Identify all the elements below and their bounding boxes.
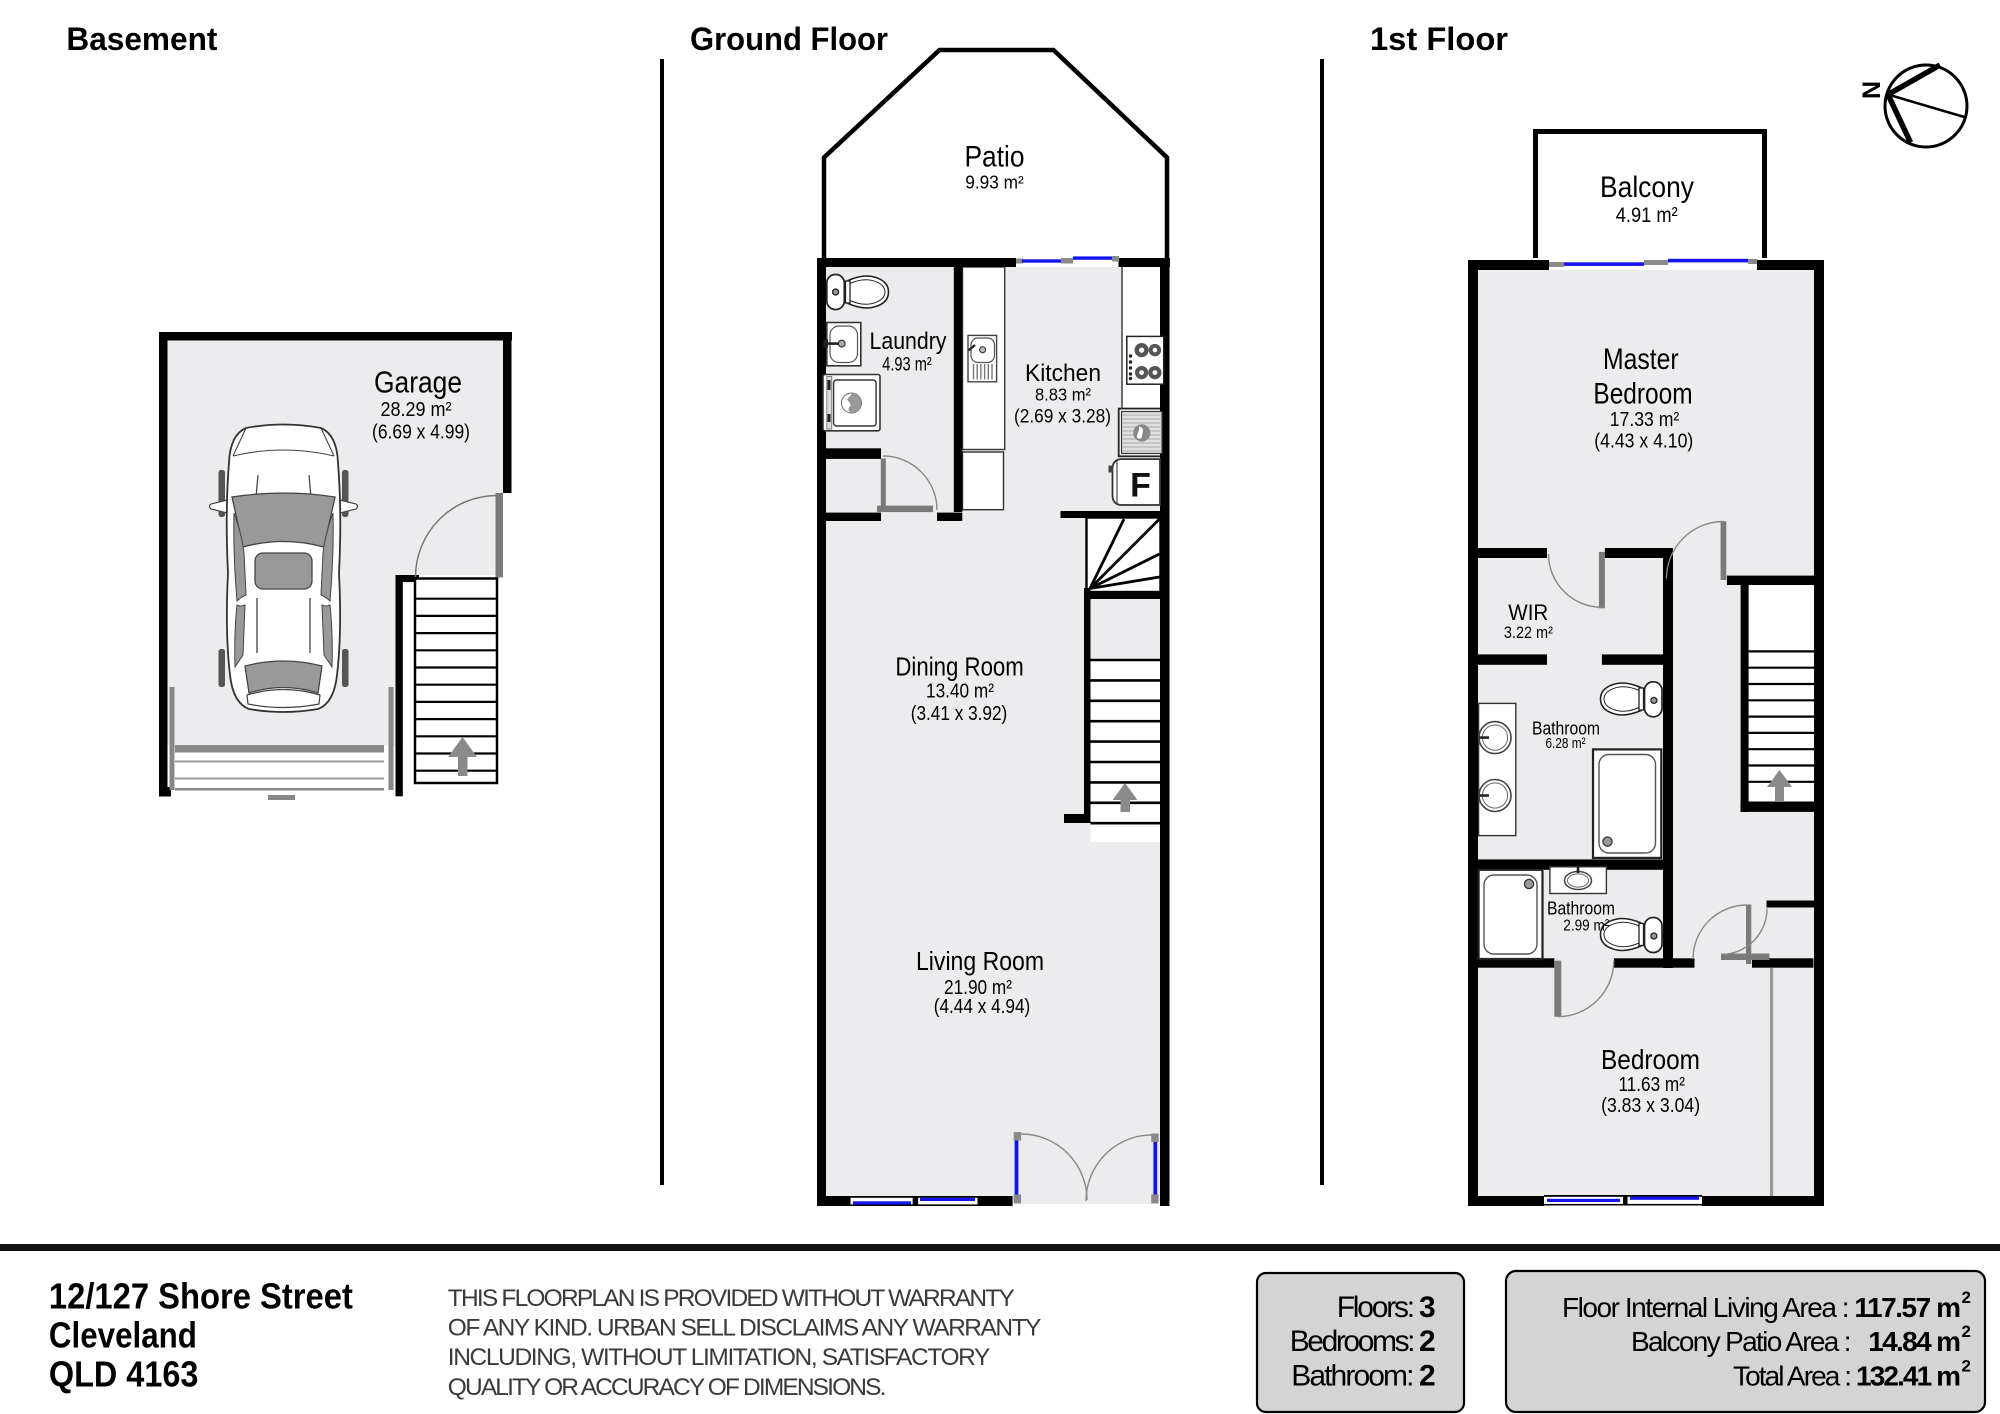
svg-text:Bedroom: Bedroom (1593, 378, 1692, 411)
svg-text:Laundry: Laundry (870, 328, 947, 355)
svg-text:6.28 m²: 6.28 m² (1546, 735, 1586, 752)
svg-text:11.63 m²: 11.63 m² (1618, 1074, 1685, 1096)
svg-text:Balcony: Balcony (1600, 171, 1694, 204)
svg-text:3.22 m²: 3.22 m² (1504, 624, 1553, 642)
svg-text:9.93 m²: 9.93 m² (965, 173, 1024, 193)
svg-text:Dining Room: Dining Room (895, 654, 1023, 682)
svg-text:(6.69 x 4.99): (6.69 x 4.99) (372, 421, 470, 444)
svg-text:13.40 m²: 13.40 m² (926, 681, 994, 703)
svg-text:2: 2 (1962, 1322, 1971, 1341)
svg-text:4.91 m²: 4.91 m² (1616, 204, 1678, 227)
svg-text:2.99 m²: 2.99 m² (1563, 918, 1610, 935)
svg-text:Balcony Patio Area : 14.84 m: Balcony Patio Area : 14.84 m (1631, 1326, 1961, 1357)
svg-text:Garage: Garage (374, 365, 462, 400)
svg-text:QUALITY OR ACCURACY OF DIMENSI: QUALITY OR ACCURACY OF DIMENSIONS. (448, 1374, 887, 1401)
svg-text:INCLUDING, WITHOUT LIMITATION,: INCLUDING, WITHOUT LIMITATION, SATISFACT… (448, 1344, 991, 1371)
svg-text:Kitchen: Kitchen (1025, 360, 1101, 387)
svg-text:2: 2 (1962, 1288, 1971, 1307)
svg-text:Living Room: Living Room (916, 948, 1044, 976)
svg-text:(3.41 x 3.92): (3.41 x 3.92) (911, 703, 1008, 725)
svg-text:Bedrooms: 2: Bedrooms: 2 (1290, 1325, 1436, 1358)
svg-text:THIS FLOORPLAN IS PROVIDED WIT: THIS FLOORPLAN IS PROVIDED WITHOUT WARRA… (448, 1285, 1015, 1312)
svg-text:OF ANY KIND. URBAN SELL DISCLA: OF ANY KIND. URBAN SELL DISCLAIMS ANY WA… (448, 1315, 1042, 1342)
svg-text:Bedroom: Bedroom (1601, 1044, 1700, 1075)
svg-text:28.29 m²: 28.29 m² (381, 398, 452, 421)
svg-text:F: F (1130, 467, 1151, 505)
svg-text:Master: Master (1603, 343, 1679, 376)
svg-text:Cleveland: Cleveland (49, 1315, 197, 1356)
svg-text:QLD 4163: QLD 4163 (49, 1354, 199, 1395)
svg-text:Floor Internal Living Area : 1: Floor Internal Living Area : 117.57 m (1562, 1292, 1961, 1323)
svg-text:Patio: Patio (965, 140, 1025, 173)
svg-text:Bathroom: 2: Bathroom: 2 (1291, 1359, 1436, 1392)
svg-text:Total Area : 132.41 m: Total Area : 132.41 m (1733, 1360, 1961, 1391)
svg-text:2: 2 (1962, 1356, 1971, 1375)
svg-text:Basement: Basement (66, 21, 217, 57)
svg-text:Bathroom: Bathroom (1547, 897, 1615, 918)
svg-text:N: N (1858, 81, 1886, 99)
svg-text:WIR: WIR (1508, 600, 1548, 625)
svg-text:(4.44 x 4.94): (4.44 x 4.94) (934, 996, 1031, 1018)
svg-text:17.33 m²: 17.33 m² (1610, 408, 1680, 431)
svg-text:Floors: 3: Floors: 3 (1337, 1291, 1436, 1324)
svg-text:Ground Floor: Ground Floor (690, 21, 888, 57)
svg-text:8.83 m²: 8.83 m² (1035, 385, 1091, 405)
svg-text:4.93 m²: 4.93 m² (882, 354, 932, 376)
svg-text:12/127 Shore Street: 12/127 Shore Street (49, 1276, 353, 1317)
svg-text:(2.69 x 3.28): (2.69 x 3.28) (1014, 406, 1111, 428)
svg-text:(3.83 x 3.04): (3.83 x 3.04) (1601, 1095, 1700, 1117)
svg-text:1st Floor: 1st Floor (1370, 21, 1508, 57)
svg-text:(4.43 x 4.10): (4.43 x 4.10) (1594, 430, 1693, 453)
